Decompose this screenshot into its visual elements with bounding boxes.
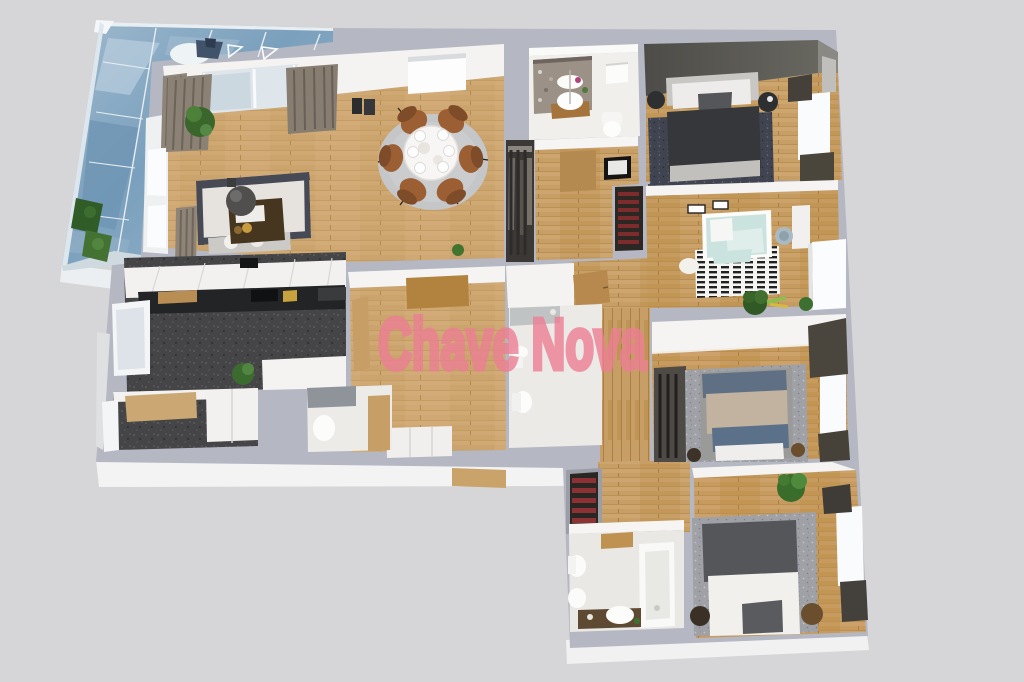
svg-text:Chave Nova: Chave Nova [378,305,647,385]
